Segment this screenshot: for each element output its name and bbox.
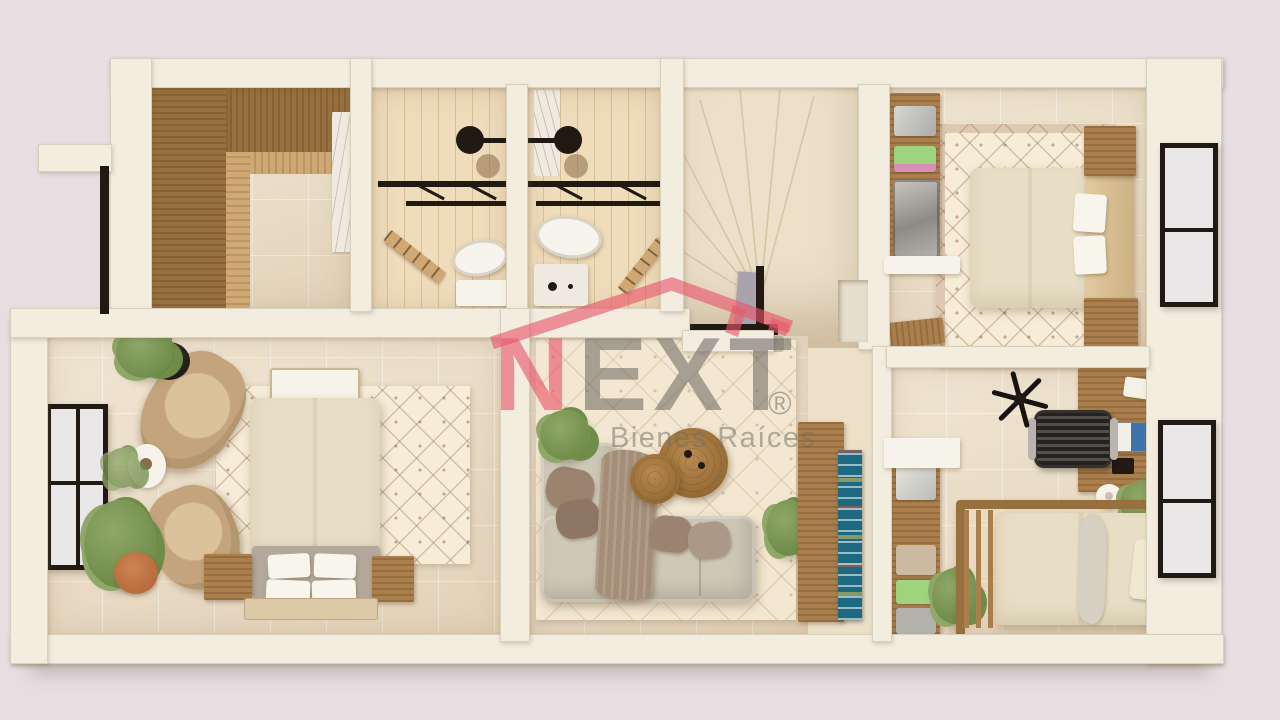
bookshelf [838,450,862,620]
candle [698,462,705,469]
bedroom2-pillow [1073,235,1107,275]
bath2-sconce-arm [528,138,556,143]
bedroom3-bed-slats [964,510,998,628]
master-nightstand-right [372,556,414,602]
master-bed [250,398,380,560]
folded-clothes-denim [896,608,936,634]
bath2-sconce-shadow [564,154,588,178]
window-mullion [1163,499,1211,503]
bedroom2-window [1160,143,1218,307]
desk-tablet [1112,458,1134,474]
wardrobe-inner-face-left [226,152,250,312]
bath2-vanity [534,264,588,306]
wall-hall-bedroom3 [872,346,892,642]
folded-towels-green [896,580,936,604]
wall-stair-bottom [682,330,774,352]
bath1-sconce [456,126,484,154]
bath2-drain [568,284,573,289]
closet-door-gap [100,166,109,314]
bath2-faucet [548,282,557,291]
bath1-shower-rail [378,181,508,187]
wall-bath2-stair [660,58,684,312]
bath2-shower-rail [528,181,660,187]
master-plant-terracotta-pot [114,552,158,594]
master-pillow [267,553,310,579]
wall-master-living [500,308,530,642]
master-nightstand-left [204,554,252,600]
bedroom3-throw [1076,514,1108,625]
wall-mid-horizontal [10,308,690,338]
floor-plan-render: N EXT ® Bienes Raíces [0,0,1280,720]
wall-closet-bath1 [350,58,372,312]
living-plant-top [540,410,590,460]
bedroom3-window [1158,420,1216,578]
wall-left-lower [10,316,48,664]
window-mullion [1165,228,1213,232]
coffee-cup [140,458,152,470]
bath1-shower-glass [406,201,508,206]
bath2-sconce [554,126,582,154]
folded-clothes-gray [894,106,936,136]
bedroom2-mirror [893,180,939,258]
wall-bottom [10,634,1224,664]
window-mullion [76,409,80,565]
master-floor-mat [244,598,378,620]
wardrobe-left [140,88,226,312]
wall-bath1-bath2 [506,84,528,312]
wall-bedroom2-bedroom3 [886,346,1150,368]
storage-box [896,545,936,575]
sofa-cushion [648,514,694,554]
bedroom2-ledge [884,256,960,274]
bedroom2-pillow [1073,193,1108,233]
hallway-counter [884,438,960,468]
office-chair-arm [1110,418,1118,460]
bath1-sconce-shadow [476,154,500,178]
candle [684,450,692,458]
paper-roll-core [1105,492,1113,500]
coffee-table-small [630,454,680,504]
folded-towels-green [894,146,936,172]
bedroom2-nightstand-top [1084,126,1136,176]
fan-hub [1014,393,1026,405]
stair-railing [756,266,764,330]
master-pillow [314,553,357,578]
bath1-vanity [456,280,508,306]
wall-left-upper [110,58,152,322]
bedroom2-nightstand-bottom [1084,298,1138,350]
bath2-shower-glass [536,201,660,206]
bedroom2-bed [970,168,1090,308]
master-wisp-plant [104,448,140,488]
ceiling-fan [988,376,1052,424]
stair-wall-niche [838,280,868,342]
